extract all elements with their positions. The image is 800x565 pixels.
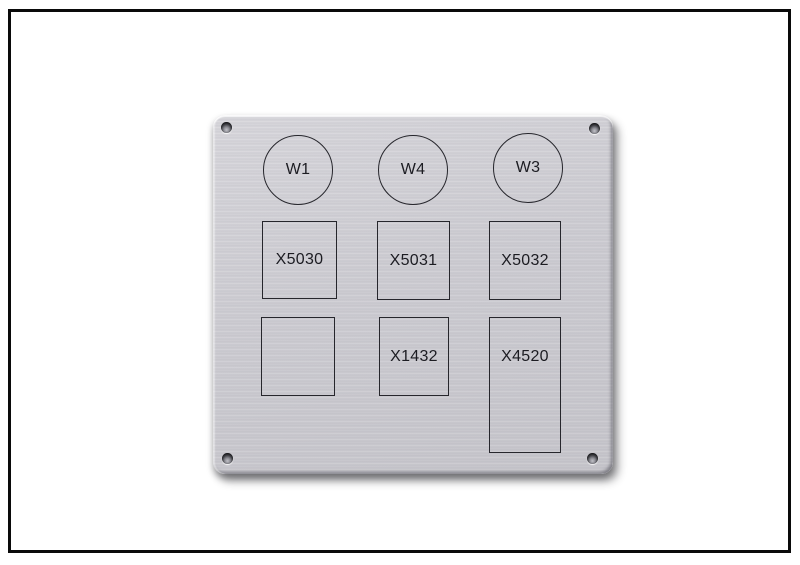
circle-label-w4: W4 (401, 161, 426, 179)
square-label-x5032: X5032 (501, 252, 549, 270)
rect-cutout-x4520: X4520 (489, 317, 561, 453)
circle-cutout-w1: W1 (263, 135, 333, 205)
square-label-x5031: X5031 (390, 252, 438, 270)
square-label-x1432: X1432 (390, 348, 438, 366)
picture-frame-border: W1 W4 W3 X5030 X5031 X5032 X1432 (8, 9, 791, 553)
square-cutout-x5030: X5030 (262, 221, 337, 299)
product-photo-stage: W1 W4 W3 X5030 X5031 X5032 X1432 (0, 0, 800, 565)
square-cutout-x1432: X1432 (379, 317, 449, 396)
square-cutout-x5031: X5031 (377, 221, 450, 300)
screw-hole-top-right (589, 123, 600, 134)
screw-hole-bottom-left (222, 453, 233, 464)
screw-hole-bottom-right (587, 453, 598, 464)
circle-label-w3: W3 (516, 159, 541, 177)
aluminum-panel-plate: W1 W4 W3 X5030 X5031 X5032 X1432 (213, 115, 613, 474)
square-cutout-x5032: X5032 (489, 221, 561, 300)
circle-label-w1: W1 (286, 161, 311, 179)
circle-cutout-w4: W4 (378, 135, 448, 205)
rect-label-x4520: X4520 (501, 348, 549, 366)
square-cutout-empty (261, 317, 335, 396)
square-label-x5030: X5030 (276, 251, 324, 269)
screw-hole-top-left (221, 122, 232, 133)
circle-cutout-w3: W3 (493, 133, 563, 203)
